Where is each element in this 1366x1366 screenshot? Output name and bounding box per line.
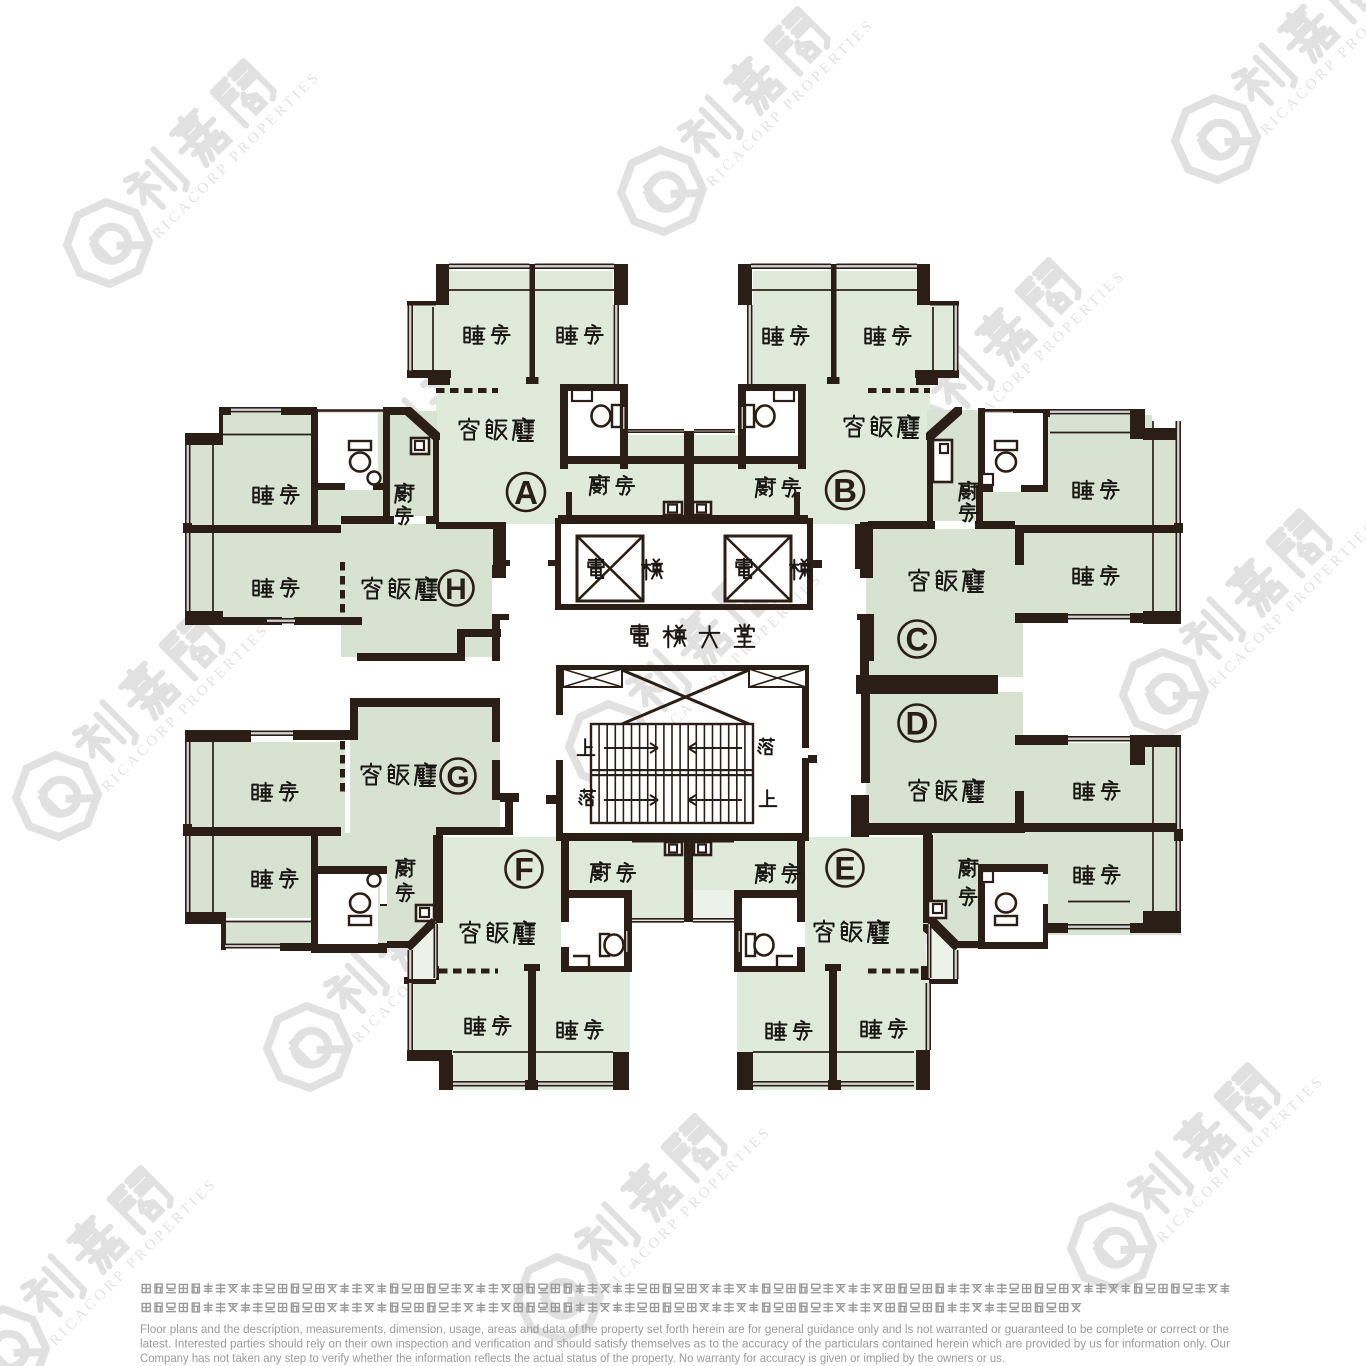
svg-text:F: F <box>514 852 534 888</box>
svg-text:E: E <box>834 851 855 887</box>
svg-text:Floor plans and the descriptio: Floor plans and the description, measure… <box>140 1322 1229 1336</box>
svg-text:H: H <box>445 573 467 606</box>
svg-text:D: D <box>905 706 928 742</box>
svg-text:Company has not taken any step: Company has not taken any step to verify… <box>140 1351 1005 1365</box>
svg-text:A: A <box>514 474 538 511</box>
svg-text:latest. Interested parties sho: latest. Interested parties should rely o… <box>140 1337 1230 1351</box>
svg-text:C: C <box>905 622 928 658</box>
svg-text:G: G <box>446 761 469 794</box>
svg-text:B: B <box>833 472 857 509</box>
